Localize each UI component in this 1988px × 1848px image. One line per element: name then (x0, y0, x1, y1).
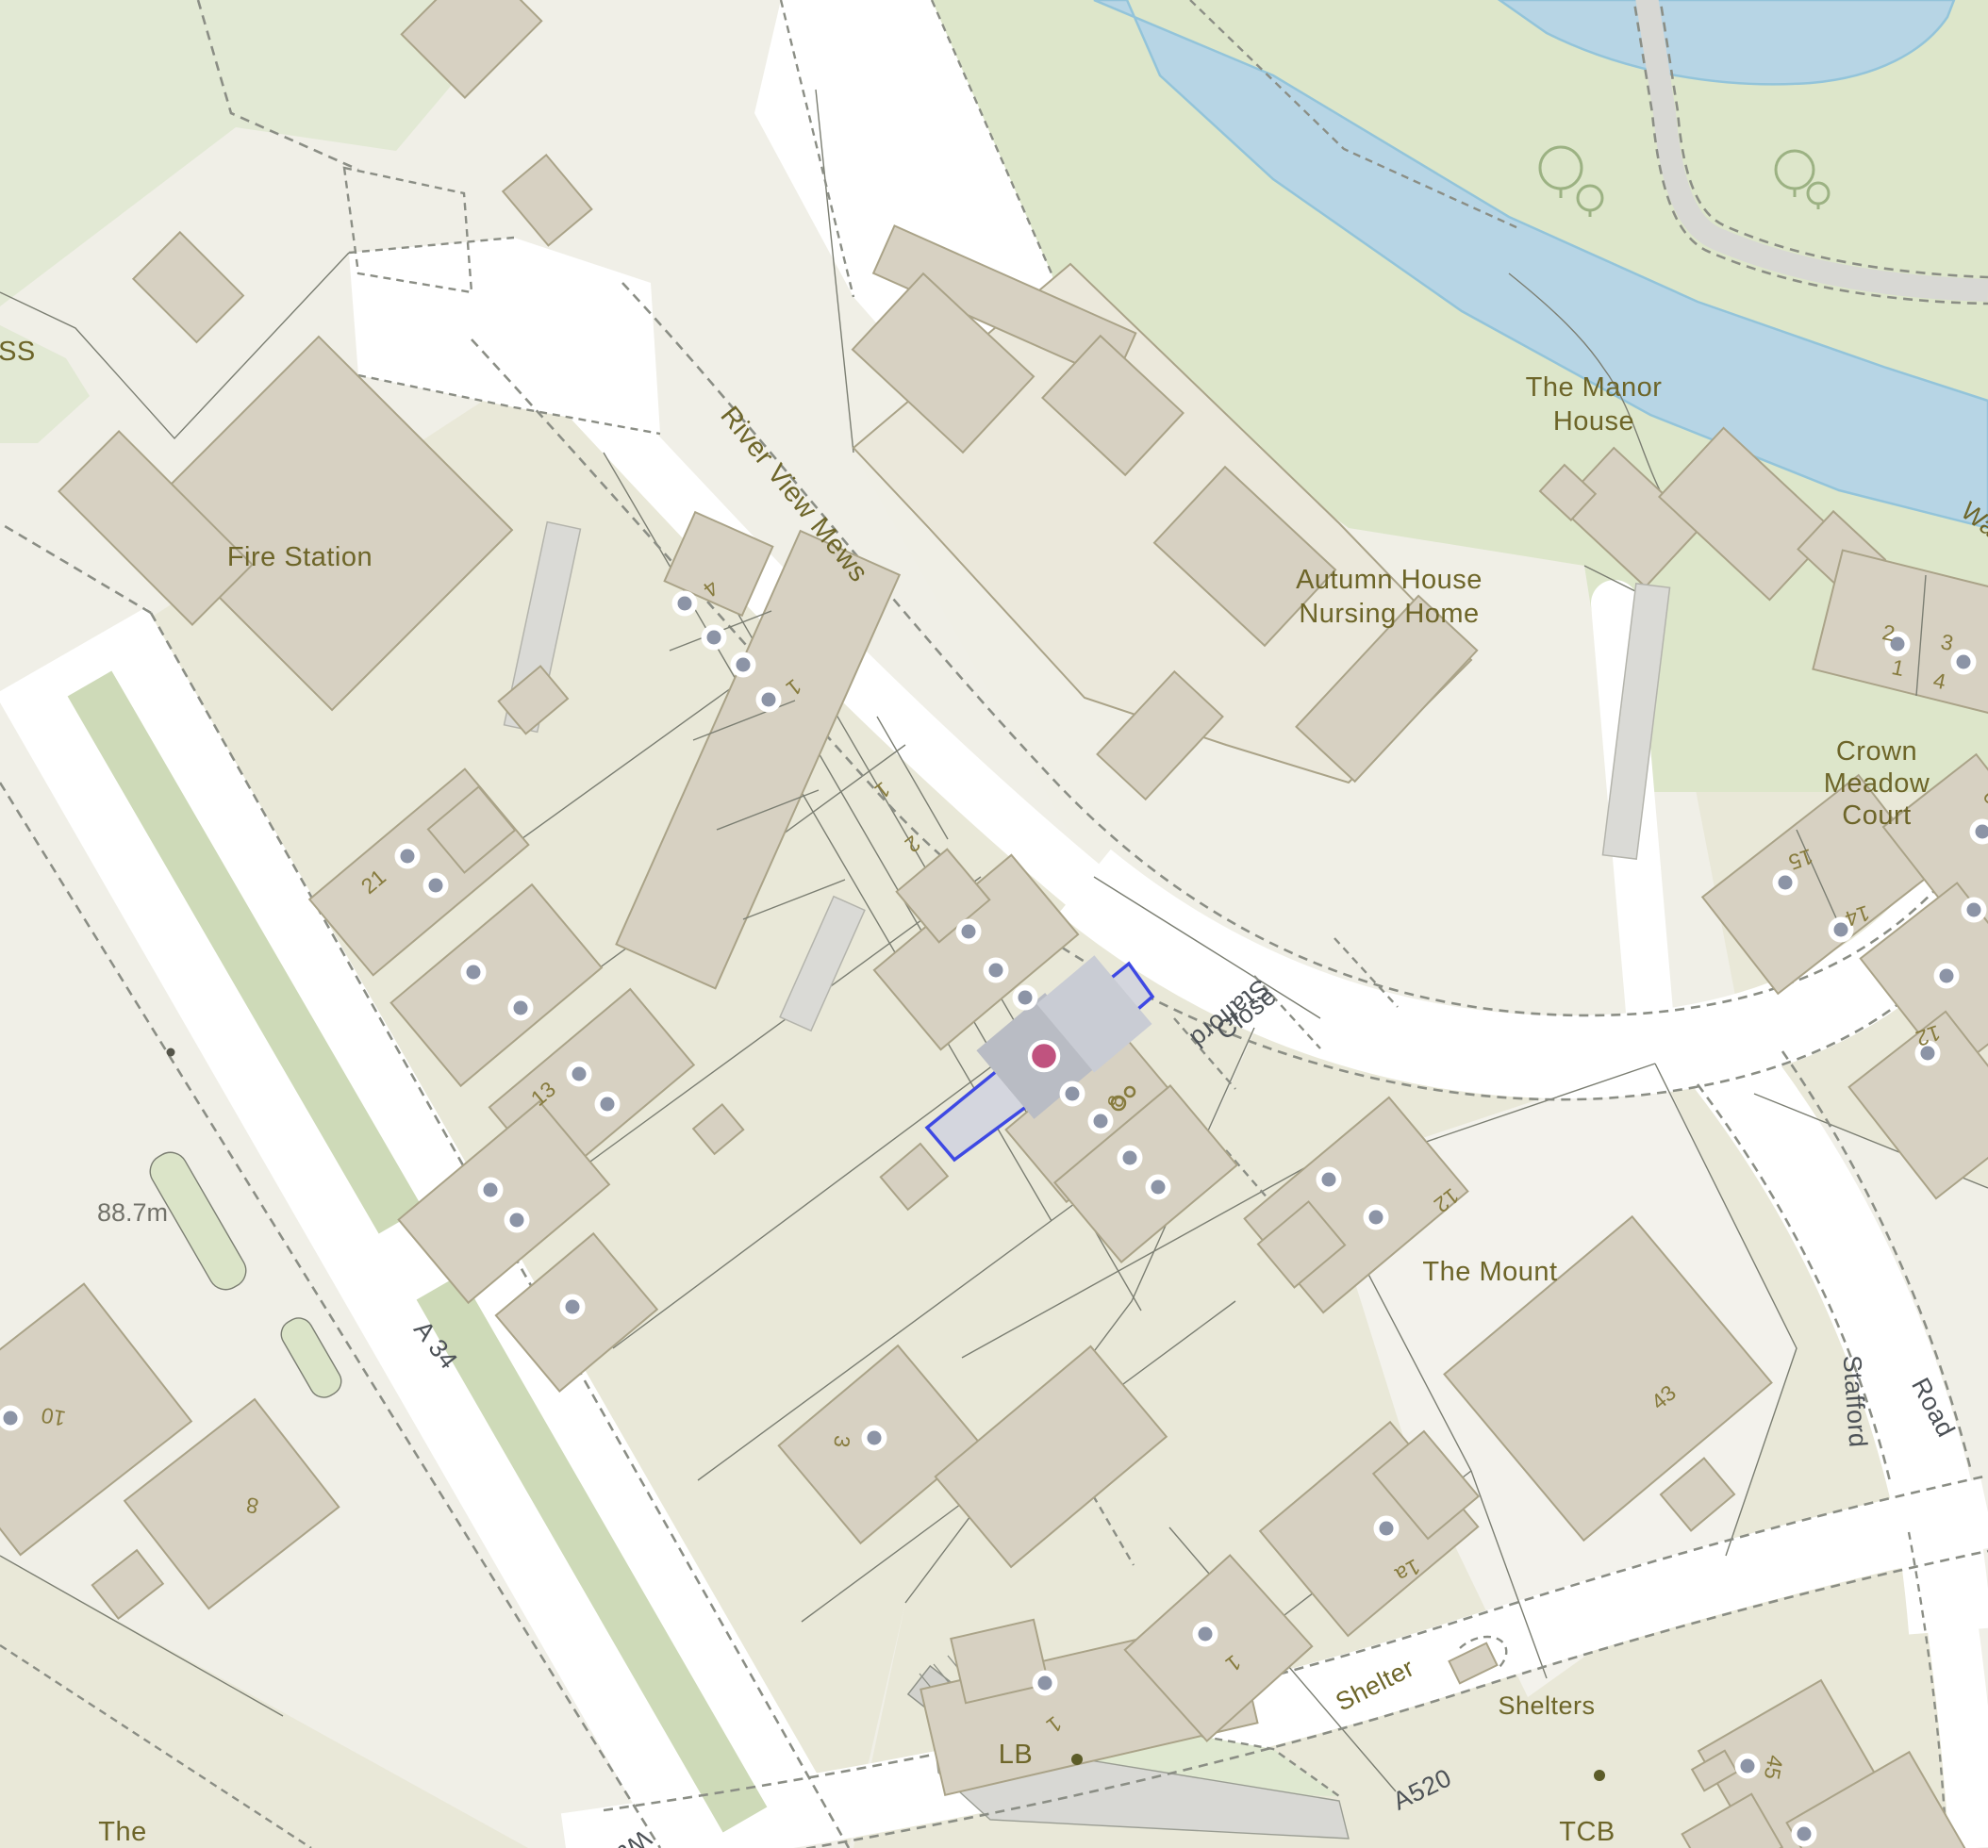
address-dot-center (4, 1411, 18, 1426)
address-dot-center (1369, 1211, 1383, 1225)
address-dot-center (601, 1097, 615, 1112)
address-dot-center (566, 1300, 580, 1314)
address-dot-center (484, 1183, 498, 1197)
address-dot-center (1038, 1676, 1052, 1691)
address-dot-center (1834, 923, 1848, 937)
label-cmc-1: Crown (1836, 736, 1917, 767)
address-dot-center (572, 1067, 587, 1081)
label-lb: LB (999, 1740, 1033, 1770)
post-dot (1594, 1770, 1605, 1781)
property-marker-pin[interactable] (1030, 1042, 1058, 1070)
address-dot-center (678, 597, 692, 611)
address-dot-center (1940, 969, 1954, 983)
label-manor-house-1: The Manor (1526, 372, 1663, 403)
address-dot-center (1967, 903, 1981, 917)
label-cmc-2: Meadow (1824, 768, 1930, 799)
address-dot-center (1199, 1627, 1213, 1642)
map-canvas[interactable]: ESS Fire Station River View Mews The Man… (0, 0, 1988, 1848)
label-ess: ESS (0, 337, 36, 367)
address-dot-center (962, 925, 976, 939)
address-dot-center (762, 693, 776, 707)
label-fire-station: Fire Station (227, 542, 373, 572)
address-dot-center (1019, 991, 1033, 1005)
svg-text:10: 10 (40, 1403, 68, 1431)
address-dot-center (1797, 1827, 1812, 1841)
address-dot-center (868, 1431, 882, 1445)
spot-height-dot (167, 1048, 175, 1057)
address-dot-center (510, 1213, 524, 1228)
address-dot-center (1094, 1114, 1108, 1129)
label-elevation: 88.7m (97, 1198, 168, 1227)
svg-text:3: 3 (829, 1434, 854, 1448)
label-cmc-3: Court (1842, 800, 1911, 831)
svg-text:45: 45 (1760, 1753, 1788, 1781)
address-dot-center (1779, 876, 1793, 890)
label-autumn-house-1: Autumn House (1296, 565, 1483, 595)
label-autumn-house-2: Nursing Home (1299, 599, 1479, 629)
label-tcb: TCB (1559, 1817, 1615, 1847)
address-dot-center (737, 658, 751, 672)
address-dot-center (1123, 1151, 1137, 1165)
address-dot-center (1957, 655, 1971, 669)
address-dot-center (989, 964, 1003, 978)
label-shelters: Shelters (1498, 1691, 1595, 1720)
label-the: The (98, 1817, 146, 1847)
map-image[interactable]: ESS Fire Station River View Mews The Man… (0, 0, 1988, 1848)
address-dot-center (1380, 1522, 1394, 1536)
address-dot-center (429, 879, 443, 893)
address-dot-center (1322, 1173, 1336, 1187)
address-dot-center (514, 1001, 528, 1015)
address-dot-center (1741, 1759, 1755, 1774)
address-dot-center (401, 850, 415, 864)
address-dot-center (707, 631, 721, 645)
address-dot-center (467, 965, 481, 980)
post-dot (1071, 1754, 1083, 1765)
address-dot-center (1151, 1180, 1166, 1195)
address-dot-center (1066, 1087, 1080, 1101)
label-the-mount: The Mount (1422, 1257, 1557, 1287)
label-manor-house-2: House (1553, 406, 1634, 437)
